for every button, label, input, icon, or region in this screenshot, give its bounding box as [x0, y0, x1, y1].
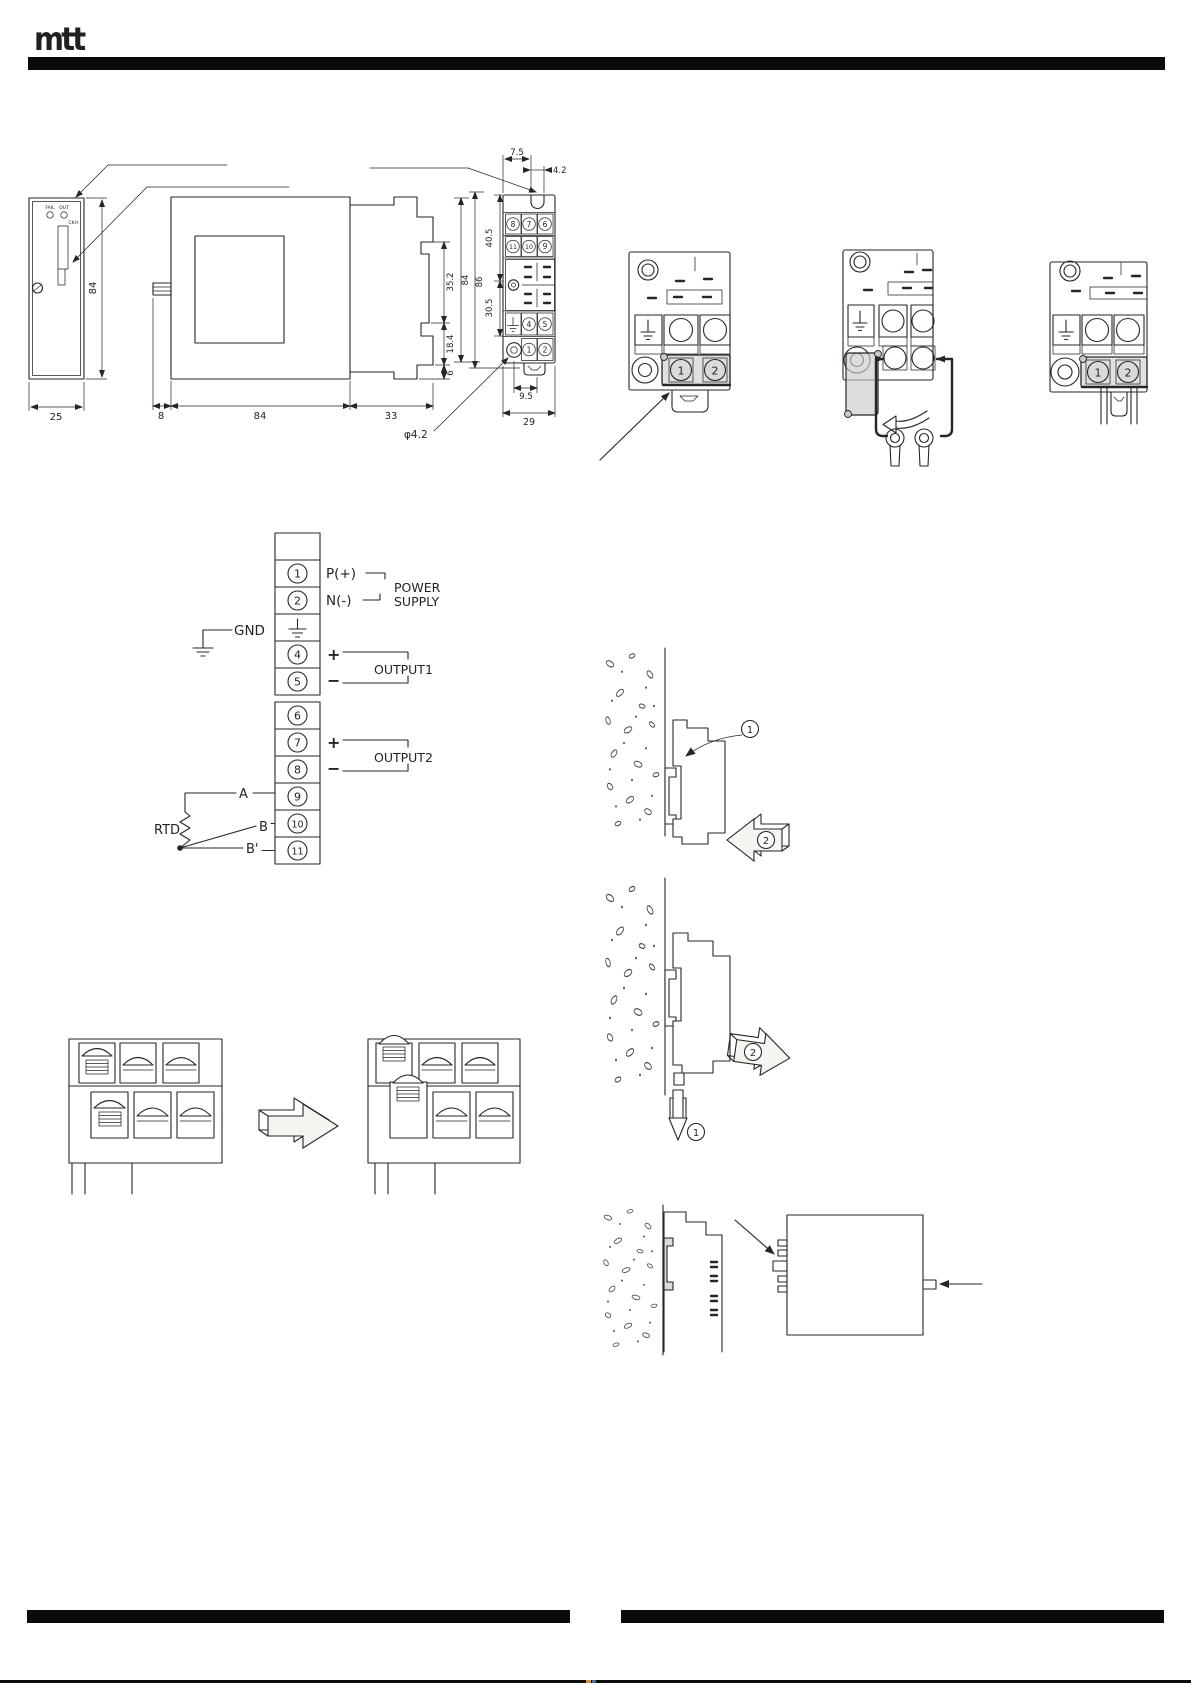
dim-rear-width: 29: [523, 417, 535, 428]
output1-plus: +: [327, 645, 340, 664]
mount-step1-number: 1: [747, 725, 753, 736]
terminal-1: 1: [527, 345, 532, 354]
led-label-fail: FAIL: [45, 205, 55, 211]
power-supply-labels: P(+) N(-) POWER SUPPLY: [326, 566, 441, 609]
dim-upper-span: 40.5: [485, 229, 495, 248]
output1-minus: −: [327, 671, 340, 690]
strip-terminal-7: 7: [294, 737, 301, 750]
dim-front-height: 84: [88, 282, 99, 295]
terminal-cover: 1 2: [661, 354, 731, 386]
cover-callout-arrow: [600, 393, 669, 460]
module-connector-pins: [773, 1240, 787, 1292]
wall-texture: [605, 886, 659, 1083]
wall-texture: [605, 653, 659, 827]
label-n-minus: N(-): [326, 593, 352, 609]
module-profile: [673, 933, 730, 1073]
terminal-cell-seated: [120, 1043, 156, 1083]
dim-height-inner: 84: [461, 275, 471, 286]
out-led-icon: [61, 212, 67, 218]
remove-step2-number: 2: [750, 1048, 756, 1059]
terminal-9: 9: [543, 242, 548, 251]
ground-symbol-icon: [641, 320, 655, 340]
screws-loosened-view: [368, 1036, 520, 1195]
top-view: 8 84 33: [153, 197, 433, 422]
side-tab: [153, 283, 171, 295]
mount-step2-number: 2: [763, 836, 769, 847]
rear-terminal-row4: 1 2: [507, 339, 553, 361]
din-rail: [665, 970, 676, 1026]
dim-tab: 8: [158, 411, 164, 422]
strip-terminal-1: 1: [294, 568, 301, 581]
rear-terminal-row1: 8 7 6: [506, 214, 554, 234]
cover-terminal-2: 2: [1125, 367, 1132, 380]
terminal-7: 7: [527, 220, 532, 229]
detached-module-body: [787, 1215, 923, 1335]
dim-body: 84: [254, 411, 267, 422]
module-separation-illustration: [603, 1205, 982, 1355]
screw-loosen-steps: [55, 1020, 525, 1195]
dim-hole-width: 4.2: [553, 166, 567, 176]
module-profile: [673, 720, 725, 844]
module-side-tab: [923, 1280, 936, 1289]
label-wire-a: A: [239, 787, 248, 802]
terminal-cell-seated: [462, 1043, 498, 1083]
strip-terminal-9: 9: [294, 791, 301, 804]
strip-terminal-5: 5: [294, 676, 301, 689]
strip-ground-symbol-icon: [289, 619, 306, 637]
strip-terminal-11: 11: [291, 847, 303, 858]
ground-symbol-icon: [508, 318, 519, 332]
terminal-cell-seated: [163, 1043, 199, 1083]
strip-terminal-8: 8: [294, 764, 301, 777]
dim-below-rail: 18.4: [446, 335, 456, 354]
remove-step1-number: 1: [693, 1128, 699, 1139]
label-supply: SUPPLY: [394, 594, 439, 609]
label-p-plus: P(+): [326, 566, 356, 582]
top-mount-slot: [531, 195, 544, 209]
label-rtd: RTD: [154, 823, 180, 838]
dim-hole-diameter: φ4.2: [404, 429, 428, 441]
adjuster-block: [506, 260, 555, 311]
wire-ring-lugs: [876, 359, 952, 466]
terminal-wiring-steps: 1 2: [565, 215, 1191, 467]
ground-symbol-icon: [853, 311, 867, 331]
output2-minus: −: [327, 759, 340, 778]
ground-symbol-icon: [1059, 320, 1073, 340]
terminal-cell-seated: [134, 1092, 171, 1138]
dim-front-width: 25: [50, 412, 63, 423]
wiring-step3-wires-covered: 1 2: [1050, 261, 1147, 424]
rail-clip-tab: [524, 363, 545, 375]
rear-terminal-row3: 4 5: [506, 313, 554, 335]
din-rail: [665, 768, 676, 824]
terminal-cell-seated: [419, 1043, 455, 1083]
terminal-cell-raised: [79, 1043, 115, 1083]
terminal-5: 5: [543, 320, 548, 329]
label-wire-b-prime: B': [246, 842, 259, 857]
release-latch: [674, 1073, 684, 1085]
dimension-drawing: FAIL OUT CKH 84 25: [20, 130, 565, 460]
rear-terminal-row2: 11 10 9: [506, 237, 554, 257]
output2-connection: + − OUTPUT2: [327, 733, 433, 778]
manual-page: mtt FAIL OUT CKH: [0, 0, 1191, 1685]
terminal-strip: 1 2 4 5 6 7 8 9 10 11: [275, 533, 320, 864]
front-slot: [58, 226, 68, 269]
terminal-4: 4: [527, 320, 532, 329]
dim-height-outer: 86: [475, 277, 485, 288]
led-label-out: OUT: [59, 205, 69, 211]
terminal-11: 11: [509, 244, 517, 251]
strip-terminal-10: 10: [291, 820, 303, 831]
callout-leader-lines: [73, 165, 536, 262]
panel-label: CKH: [68, 220, 78, 226]
terminal-cell-seated: [476, 1092, 513, 1138]
wiring-step2-cover-open: [843, 250, 952, 466]
rail-clip-tab: [1111, 392, 1127, 416]
step-arrow-icon: [259, 1098, 338, 1148]
rear-view: 8 7 6 11 10 9: [404, 148, 567, 441]
cover-terminal-2: 2: [712, 365, 719, 378]
output2-plus: +: [327, 733, 340, 752]
strip-terminal-4: 4: [294, 649, 301, 662]
dim-terminal-block: 33: [385, 411, 398, 422]
connection-diagram: 1 2 4 5 6 7 8 9 10 11 P(+) N(-) POWER SU…: [140, 480, 470, 890]
rtd-resistor-icon: [180, 812, 190, 844]
screws-tight-view: [69, 1039, 222, 1194]
fail-led-icon: [47, 212, 53, 218]
mounting-illustrations: 1 2 1: [560, 640, 1000, 1360]
side-profile: 35.2 18.4 6 84 86: [350, 192, 520, 379]
cover-terminal-1: 1: [678, 365, 685, 378]
mount-attach-illustration: 1 2: [605, 648, 789, 861]
terminal-8: 8: [511, 220, 516, 229]
terminal-6: 6: [543, 220, 548, 229]
registration-mark-blue: [592, 1680, 596, 1683]
terminal-10: 10: [525, 244, 533, 251]
terminal-2: 2: [543, 345, 548, 354]
connector-callout-arrow: [735, 1220, 774, 1254]
footer-rule-left: [27, 1610, 570, 1623]
terminal-cell-raised: [91, 1092, 128, 1138]
screwdriver-pull-icon: [669, 1090, 687, 1140]
footer-rule-right: [621, 1610, 1164, 1623]
strip-terminal-6: 6: [294, 710, 301, 723]
output2-label: OUTPUT2: [374, 750, 433, 765]
registration-mark-orange: [586, 1680, 591, 1683]
rtd-connection: RTD A B B': [154, 787, 275, 857]
front-view: FAIL OUT CKH 84 25: [29, 198, 107, 423]
ground-connection: GND: [193, 623, 265, 656]
dim-hole-to-center: 9.5: [519, 392, 533, 402]
terminal-cell-loosened: [390, 1075, 427, 1138]
dim-foot: 6: [446, 370, 456, 375]
label-gnd: GND: [234, 623, 265, 639]
dim-lower-span: 30.5: [485, 299, 495, 318]
mounting-hole-icon: [507, 343, 522, 358]
output1-connection: + − OUTPUT1: [327, 645, 433, 690]
label-power: POWER: [394, 580, 441, 595]
label-wire-b: B: [259, 820, 268, 835]
terminal-cell-seated: [177, 1092, 214, 1138]
terminal-cell-seated: [433, 1092, 470, 1138]
brand-logo: mtt: [34, 20, 83, 58]
terminal-cover: 1 2: [1080, 356, 1148, 388]
wall-texture: [603, 1209, 657, 1347]
cover-terminal-1: 1: [1095, 367, 1102, 380]
header-rule: [28, 57, 1165, 70]
strip-terminal-2: 2: [294, 595, 301, 608]
dim-rail-slot: 35.2: [446, 273, 456, 292]
dim-hole-offset: 7.5: [510, 148, 524, 158]
output1-label: OUTPUT1: [374, 662, 433, 677]
wiring-step1-cover-closed: 1 2: [600, 252, 730, 460]
mount-remove-illustration: 1 2: [605, 878, 794, 1141]
